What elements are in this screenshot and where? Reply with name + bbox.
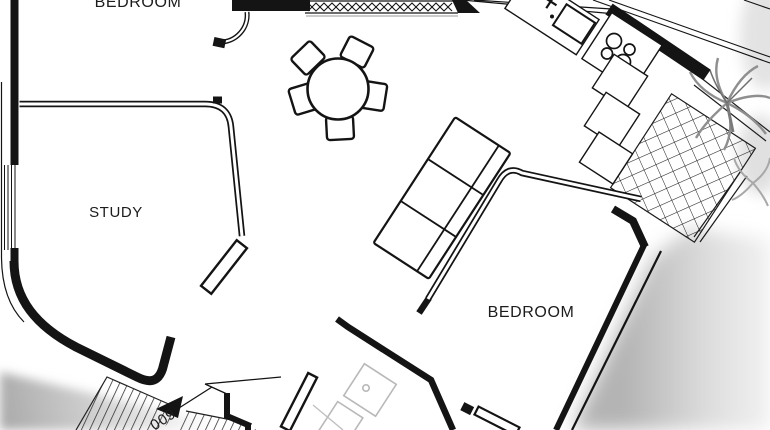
wall-left-upper [11,0,19,165]
room-label-bedroom: BEDROOM [488,304,575,321]
floor-plan-canvas: BEDROOM STUDY BEDROOM 009 [0,0,770,430]
room-label-bedroom-top: BEDROOM [95,0,182,11]
floor-plan: BEDROOM STUDY BEDROOM 009 [0,0,770,430]
sink-drain [550,15,554,19]
wall-bedroom-top [232,0,310,11]
room-label-study: STUDY [89,204,143,221]
dining-table [308,59,369,120]
door-stop [213,97,222,104]
